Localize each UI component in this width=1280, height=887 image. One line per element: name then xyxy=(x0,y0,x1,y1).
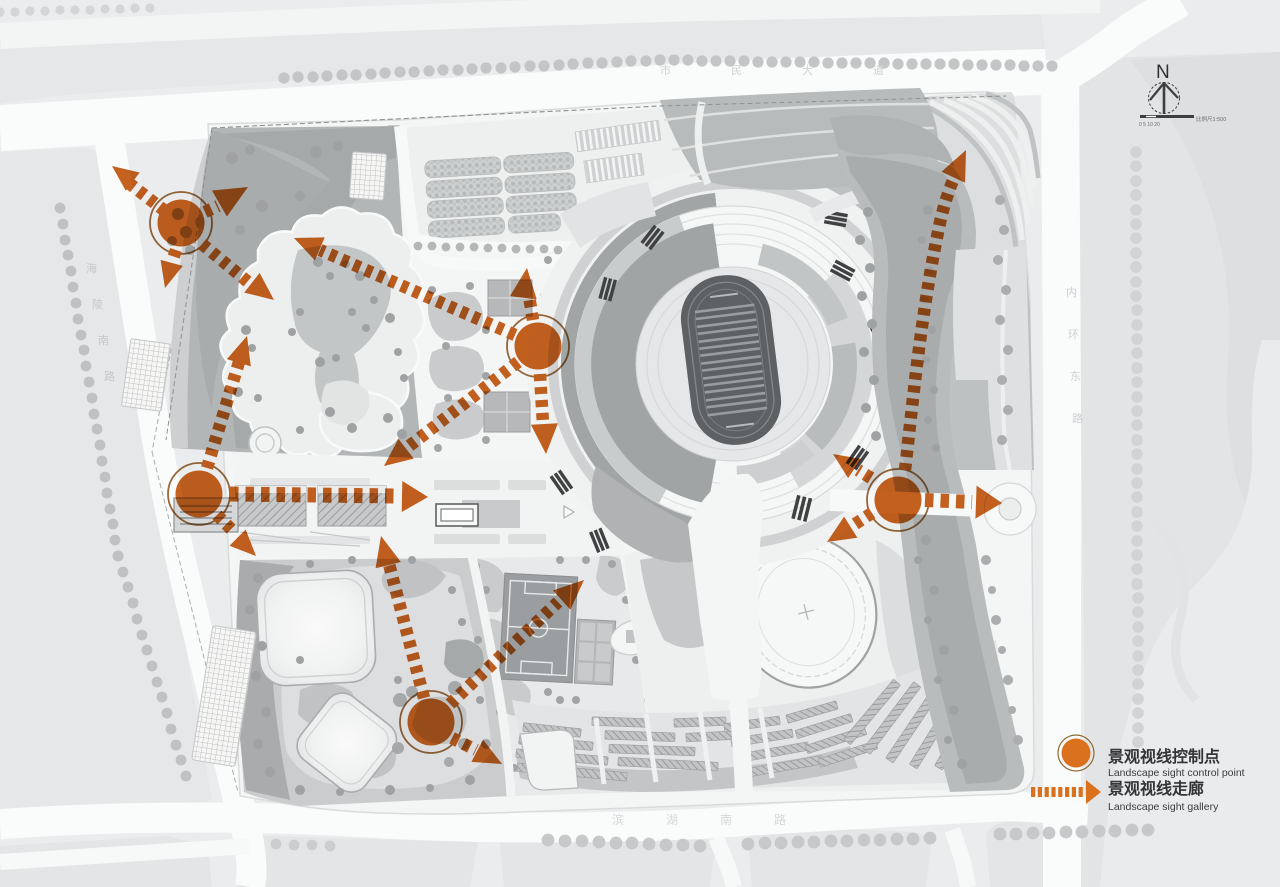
svg-text:海: 海 xyxy=(86,261,97,275)
svg-text:南: 南 xyxy=(98,334,109,347)
svg-text:路: 路 xyxy=(1072,412,1083,425)
svg-text:环: 环 xyxy=(1068,329,1079,341)
svg-text:内: 内 xyxy=(1066,285,1077,299)
svg-text:市民大道: 市民大道 xyxy=(660,63,944,77)
svg-text:东: 东 xyxy=(1070,370,1081,383)
svg-text:0 5 10 20: 0 5 10 20 xyxy=(1139,122,1160,128)
svg-text:Landscape sight control point: Landscape sight control point xyxy=(1108,767,1245,779)
svg-text:滨湖南路: 滨湖南路 xyxy=(612,812,828,827)
svg-text:比例尺1:500: 比例尺1:500 xyxy=(1196,115,1226,123)
svg-text:Landscape sight gallery: Landscape sight gallery xyxy=(1108,801,1219,813)
svg-text:景观视线控制点: 景观视线控制点 xyxy=(1108,747,1220,766)
svg-text:路: 路 xyxy=(104,370,115,383)
svg-text:N: N xyxy=(1156,62,1170,83)
svg-text:陵: 陵 xyxy=(92,298,103,311)
svg-text:景观视线走廊: 景观视线走廊 xyxy=(1108,779,1204,798)
